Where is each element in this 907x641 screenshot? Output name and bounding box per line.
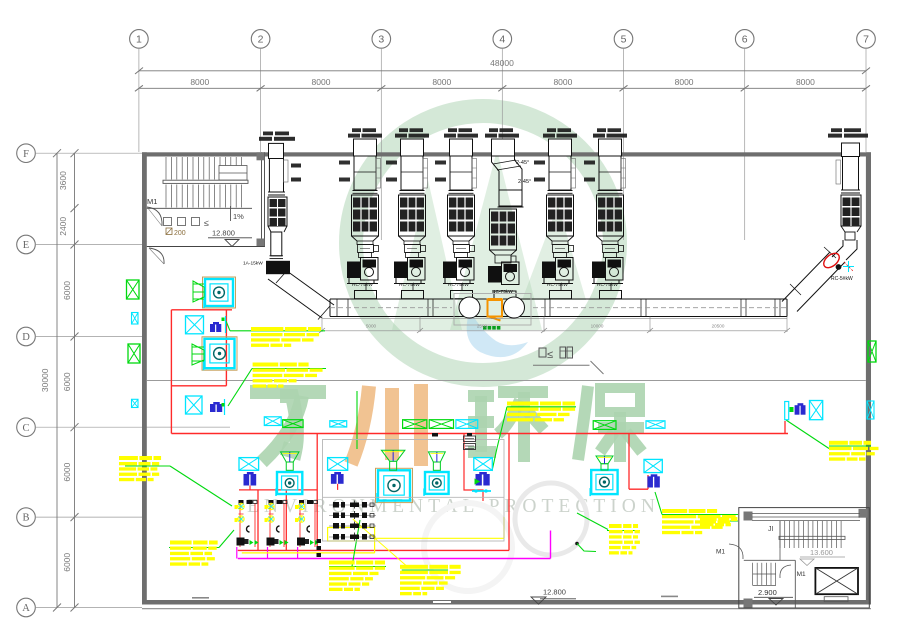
svg-text:200: 200: [174, 230, 186, 237]
svg-text:13.600: 13.600: [810, 548, 833, 557]
svg-text:3: 3: [378, 34, 384, 46]
svg-text:8000: 8000: [312, 77, 331, 87]
svg-text:RC-75kW: RC-75kW: [352, 282, 373, 288]
svg-text:5000: 5000: [366, 324, 377, 329]
svg-text:3600: 3600: [58, 171, 68, 190]
svg-text:8000: 8000: [432, 77, 451, 87]
svg-text:20500: 20500: [712, 324, 725, 329]
svg-text:10000: 10000: [591, 324, 604, 329]
svg-text:C: C: [22, 423, 29, 434]
svg-text:30000: 30000: [40, 368, 50, 392]
svg-text:M1: M1: [716, 549, 725, 556]
svg-text:8000: 8000: [553, 77, 572, 87]
svg-text:7: 7: [863, 34, 869, 46]
svg-text:RC-75kW: RC-75kW: [399, 282, 420, 288]
svg-text:1: 1: [136, 34, 142, 46]
svg-text:B: B: [22, 513, 29, 524]
svg-text:1A-15kW: 1A-15kW: [243, 261, 263, 267]
svg-text:M1: M1: [797, 571, 806, 578]
svg-text:JI: JI: [768, 526, 774, 533]
svg-text:8000: 8000: [796, 77, 815, 87]
svg-text:≤: ≤: [547, 349, 553, 361]
svg-text:2500: 2500: [477, 324, 488, 329]
svg-text:12.800: 12.800: [212, 229, 235, 238]
svg-text:RC-75kW: RC-75kW: [448, 282, 469, 288]
svg-text:2-45°: 2-45°: [516, 160, 529, 166]
svg-text:2.900: 2.900: [758, 588, 777, 597]
svg-text:2: 2: [258, 34, 264, 46]
svg-text:6: 6: [742, 34, 748, 46]
svg-text:RC-75kW: RC-75kW: [492, 289, 513, 295]
svg-text:6000: 6000: [62, 553, 72, 572]
svg-text:RC-75kW: RC-75kW: [597, 282, 618, 288]
svg-text:RC-75kW: RC-75kW: [547, 282, 568, 288]
svg-text:1%: 1%: [233, 212, 244, 221]
svg-text:8000: 8000: [190, 77, 209, 87]
svg-text:5: 5: [621, 34, 627, 46]
svg-text:2400: 2400: [58, 217, 68, 236]
svg-text:F: F: [23, 149, 29, 160]
svg-text:12.800: 12.800: [543, 588, 566, 597]
svg-text:6000: 6000: [62, 281, 72, 300]
svg-text:≤: ≤: [204, 218, 209, 228]
svg-text:6000: 6000: [62, 462, 72, 481]
svg-text:M1: M1: [147, 197, 157, 206]
svg-text:48000: 48000: [490, 58, 514, 68]
svg-text:6000: 6000: [62, 372, 72, 391]
svg-text:RC-5#kW: RC-5#kW: [831, 276, 853, 282]
svg-text:E: E: [23, 240, 29, 251]
svg-text:D: D: [22, 332, 30, 343]
svg-text:4: 4: [499, 34, 505, 46]
svg-text:A: A: [22, 603, 30, 614]
svg-text:8000: 8000: [675, 77, 694, 87]
svg-text:2-45°: 2-45°: [518, 179, 531, 185]
